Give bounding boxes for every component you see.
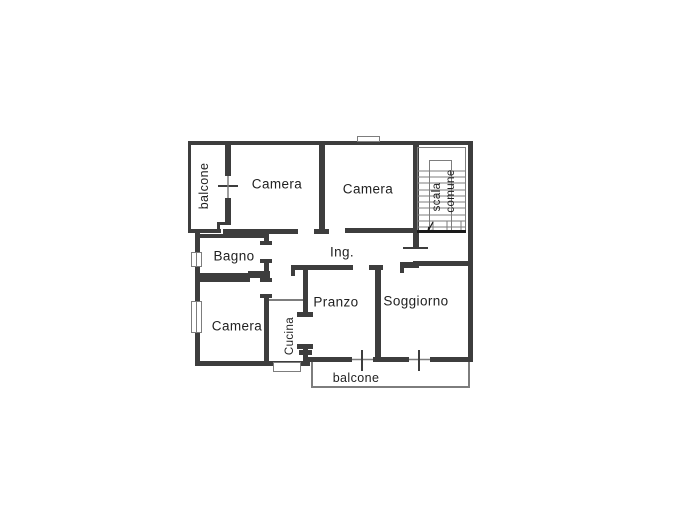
balcony-left-walls xyxy=(188,141,238,233)
balcony-edge xyxy=(311,386,470,388)
wall xyxy=(264,234,269,242)
door-jamb xyxy=(297,344,313,349)
wall xyxy=(197,273,250,282)
wall xyxy=(248,271,270,278)
wall xyxy=(413,143,419,233)
wall xyxy=(319,143,325,230)
room-label-ingresso: Ing. xyxy=(330,245,354,260)
wall xyxy=(188,229,221,233)
wall xyxy=(345,228,415,233)
wall xyxy=(308,357,470,362)
entrance-door-tick xyxy=(403,247,428,249)
wall xyxy=(223,229,298,234)
wall xyxy=(413,233,419,249)
wall xyxy=(197,234,268,238)
wall xyxy=(195,229,200,366)
wall xyxy=(188,141,191,233)
kitchen-window-sill xyxy=(274,363,301,372)
door-jamb xyxy=(297,312,313,317)
door-tick xyxy=(361,350,363,371)
room-label-bagno: Bagno xyxy=(213,249,254,264)
wall xyxy=(225,141,231,176)
door-jamb xyxy=(260,278,272,282)
room-label-camera-2: Camera xyxy=(343,182,393,197)
door-tick xyxy=(418,350,420,371)
wall xyxy=(264,298,269,363)
wall xyxy=(291,265,353,270)
room-label-comune: comune xyxy=(445,169,457,212)
kitchen-counter-line xyxy=(269,299,307,301)
wall xyxy=(291,265,295,276)
balcony-edge xyxy=(311,362,313,388)
door-jamb xyxy=(400,262,404,273)
door-jamb xyxy=(314,229,329,234)
door-jamb xyxy=(260,294,272,298)
room-label-cucina: Cucina xyxy=(284,317,296,355)
door-jamb xyxy=(260,241,272,245)
floorplan-page: balcone Camera Camera scala comune Bagno… xyxy=(0,0,692,518)
living-entrance-walls xyxy=(400,233,471,273)
room-label-balcone-left: balcone xyxy=(197,163,211,210)
room-label-pranzo: Pranzo xyxy=(313,295,358,310)
wall xyxy=(413,261,471,266)
wall xyxy=(303,267,308,317)
room-label-camera-3: Camera xyxy=(212,319,262,334)
room-label-balcone-bottom: balcone xyxy=(333,371,380,385)
balcony-edge xyxy=(468,362,470,388)
wall xyxy=(299,350,312,355)
wall xyxy=(375,265,381,358)
roof-shaft-outline xyxy=(358,137,380,142)
stair-landing-edge xyxy=(417,230,466,233)
room-label-soggiorno: Soggiorno xyxy=(383,294,448,309)
wall xyxy=(468,141,473,362)
room-label-scala: scala xyxy=(431,183,443,212)
wall xyxy=(225,198,231,224)
room-label-camera-1: Camera xyxy=(252,177,302,192)
